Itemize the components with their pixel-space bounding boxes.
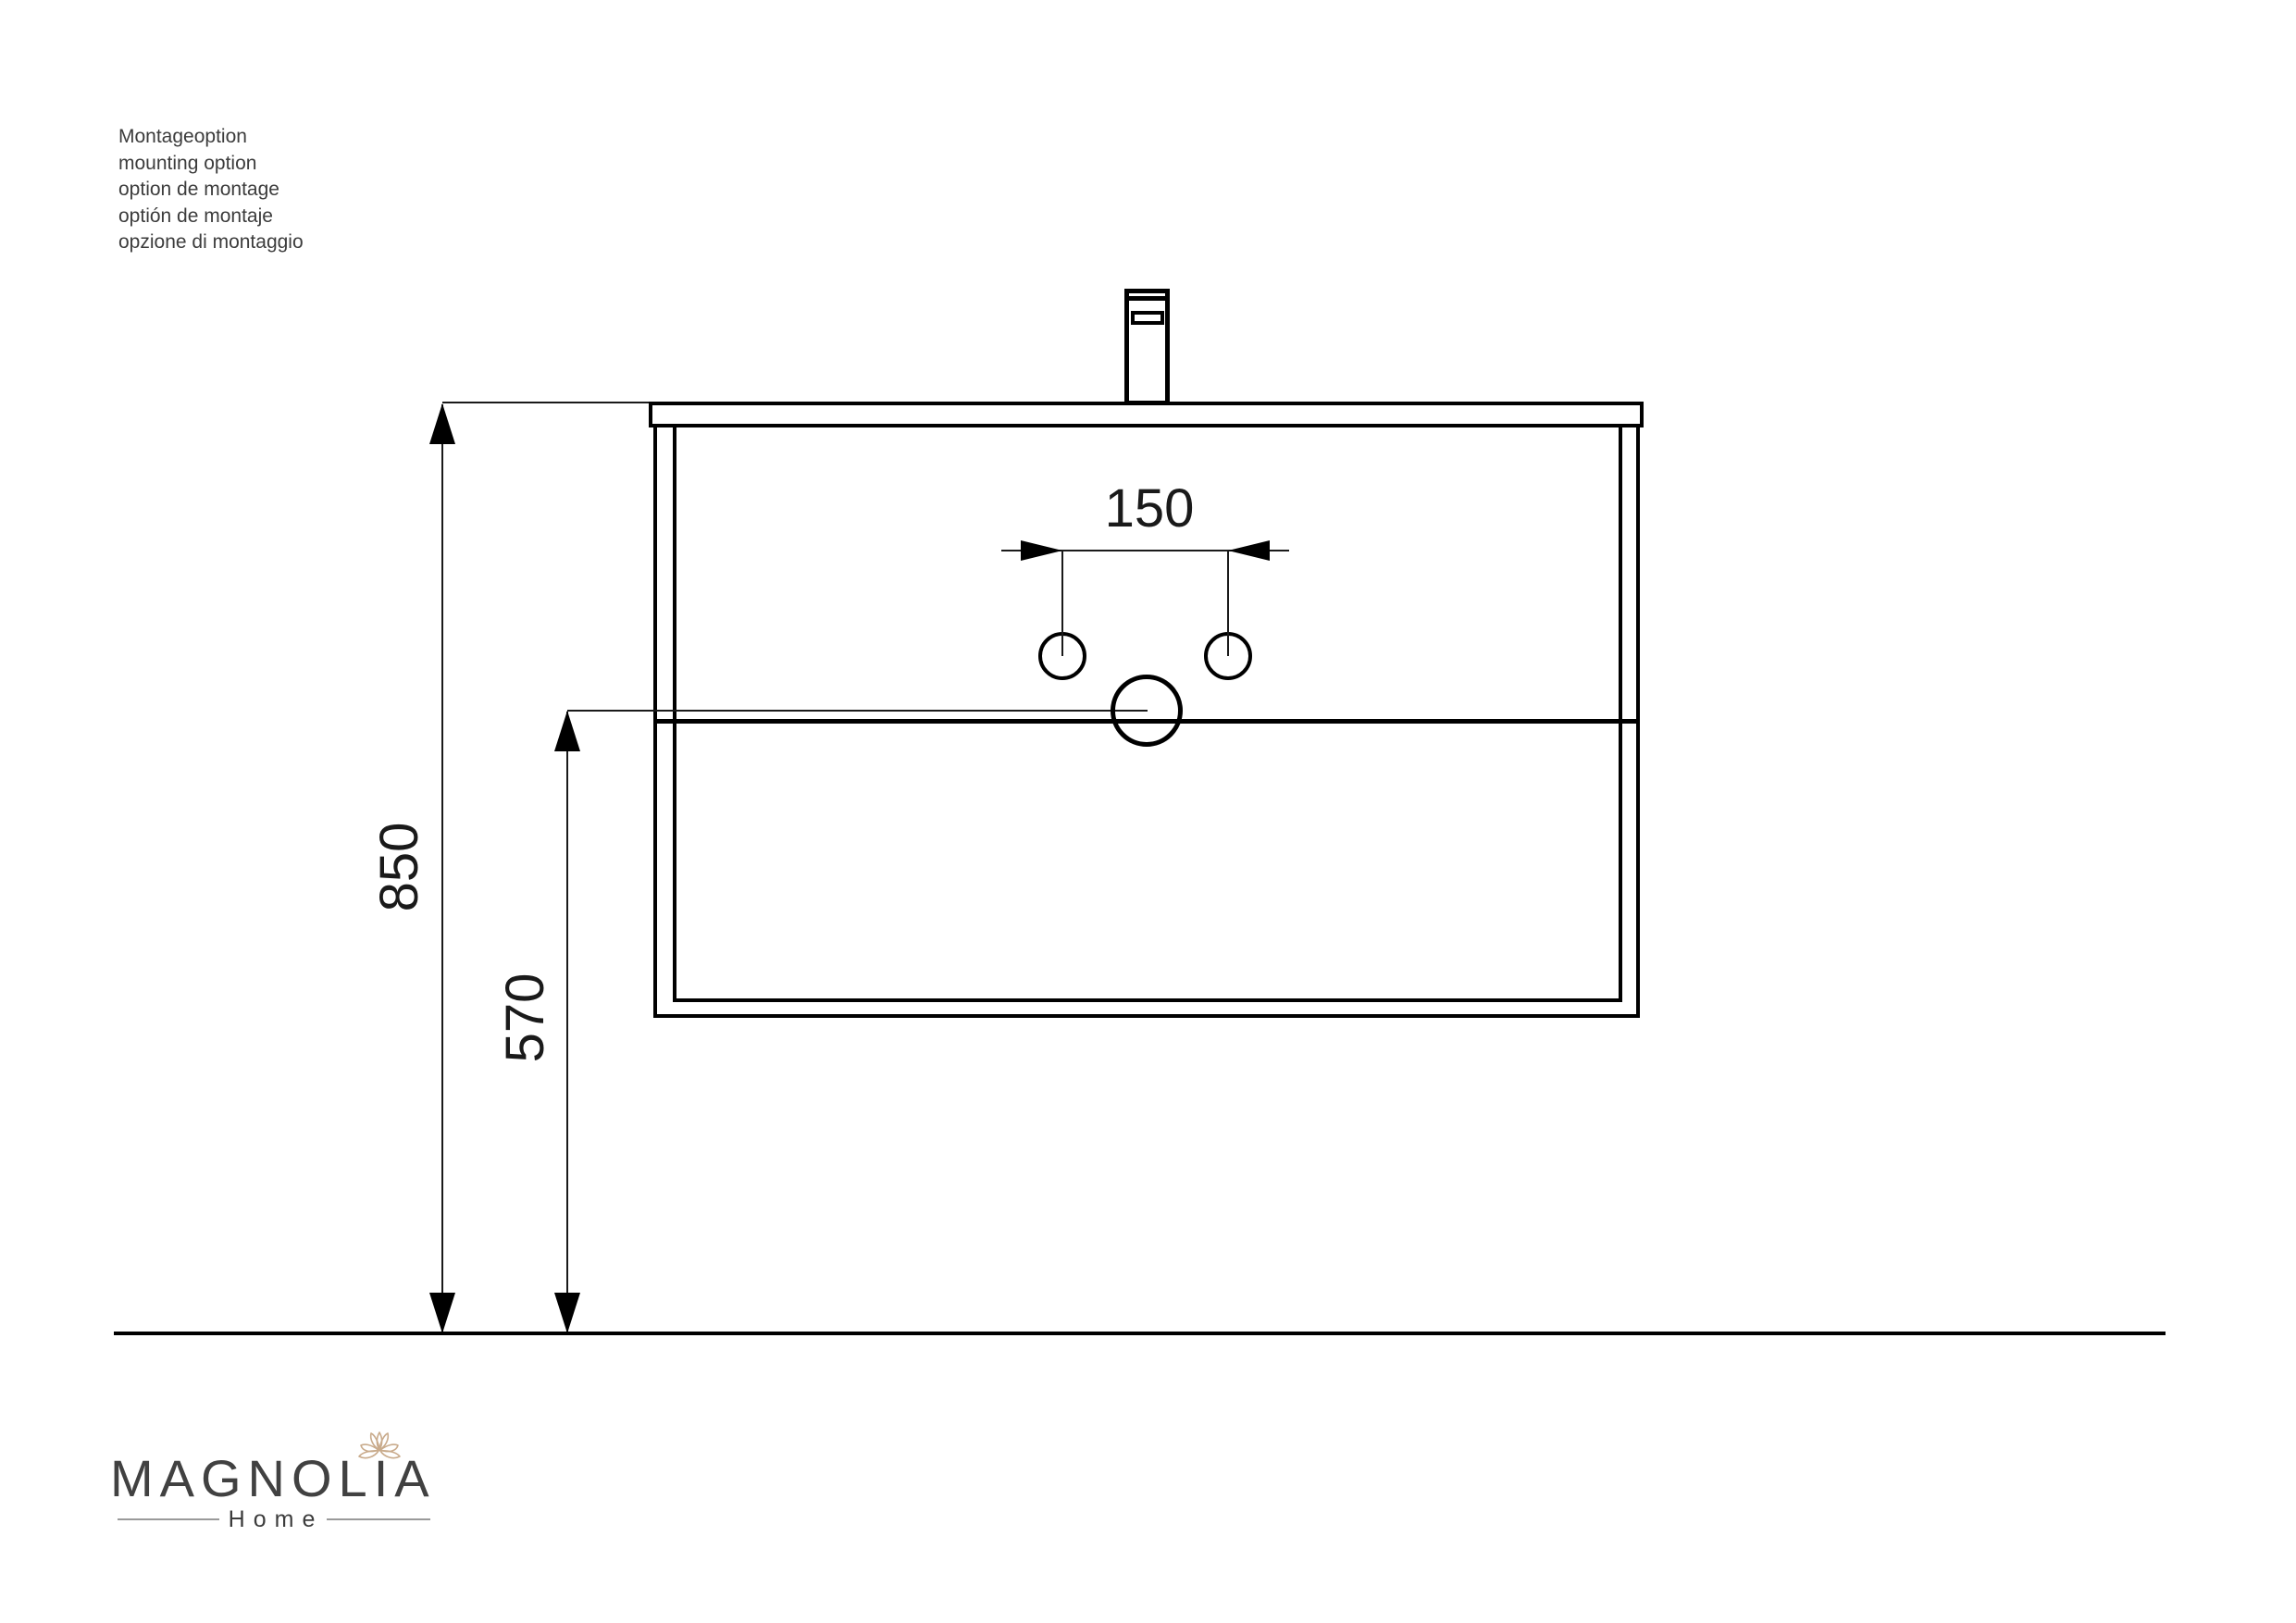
dimension-label-570: 570: [495, 916, 556, 1120]
extension-line-150-left: [1061, 551, 1063, 656]
note-line-fr: option de montage: [118, 177, 304, 204]
vanity-countertop: [649, 402, 1644, 427]
dimension-line-570: [566, 712, 568, 1333]
dimension-label-150: 150: [1011, 477, 1288, 539]
logo-tagline-text: Home: [223, 1506, 324, 1533]
notes-block: Montageoption mounting option option de …: [118, 124, 304, 256]
extension-line-850-top: [442, 402, 649, 403]
dimension-label-850: 850: [369, 765, 430, 969]
note-line-it: opzione di montaggio: [118, 229, 304, 256]
note-line-de: Montageoption: [118, 124, 304, 151]
arrowhead-850-bottom: [429, 1293, 455, 1333]
technical-drawing-page: Montageoption mounting option option de …: [0, 0, 2296, 1623]
note-line-en: mounting option: [118, 151, 304, 178]
note-line-es: optión de montaje: [118, 204, 304, 230]
faucet-body: [1124, 289, 1170, 405]
logo-rule-right: [327, 1518, 430, 1520]
drain-hole-circle: [1111, 675, 1183, 747]
logo-rule-left: [118, 1518, 219, 1520]
arrowhead-850-top: [429, 403, 455, 444]
dimension-line-850: [441, 404, 443, 1333]
floor-line: [114, 1332, 2166, 1335]
extension-line-150-right: [1227, 551, 1229, 656]
arrowhead-150-right: [1228, 540, 1270, 561]
faucet-slot: [1131, 311, 1164, 325]
logo-brand-text: MAGNOLIA: [110, 1449, 436, 1508]
faucet-cap-line: [1124, 296, 1170, 301]
arrowhead-570-bottom: [554, 1293, 580, 1333]
arrowhead-570-top: [554, 711, 580, 751]
extension-line-570: [567, 710, 1148, 712]
arrowhead-150-left: [1021, 540, 1062, 561]
logo-tagline-row: Home: [118, 1505, 430, 1534]
